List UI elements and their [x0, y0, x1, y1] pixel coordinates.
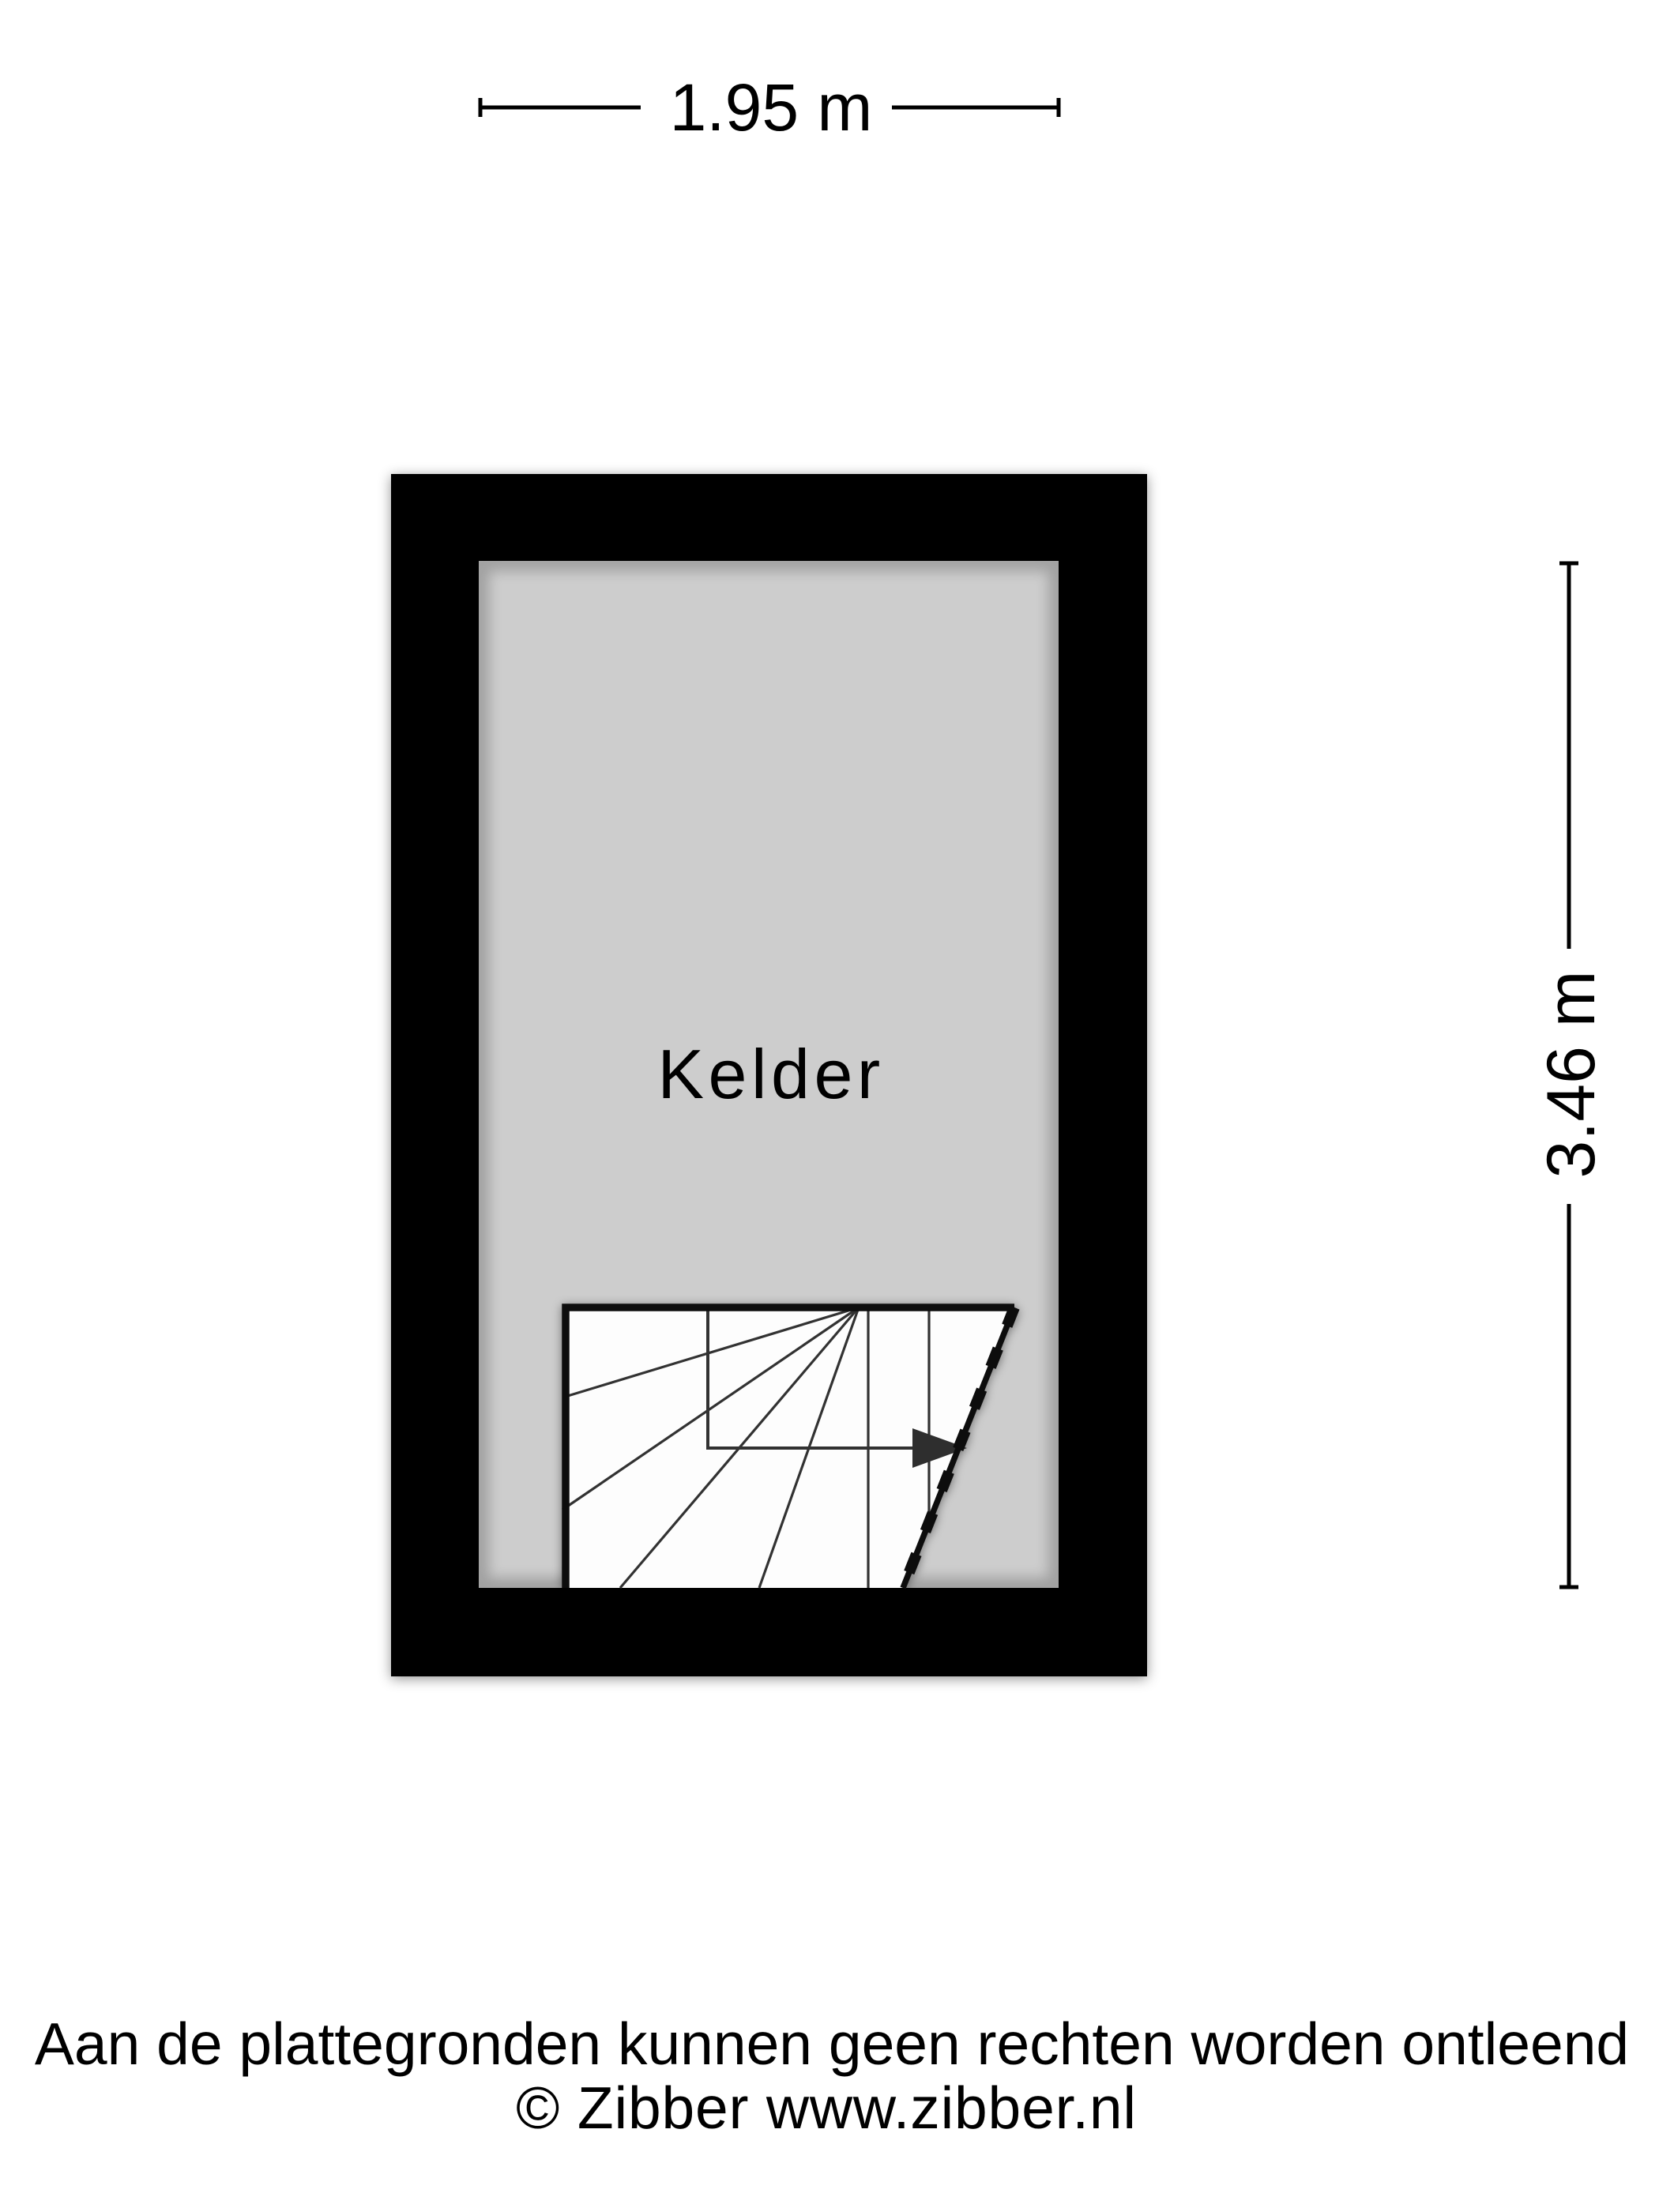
svg-text:3.46 m: 3.46 m: [1533, 971, 1609, 1179]
svg-text:© Zibber www.zibber.nl: © Zibber www.zibber.nl: [516, 2075, 1137, 2141]
svg-text:1.95 m: 1.95 m: [670, 70, 873, 145]
svg-text:Aan de plattegronden kunnen ge: Aan de plattegronden kunnen geen rechten…: [35, 2011, 1629, 2077]
svg-text:Kelder: Kelder: [657, 1035, 884, 1113]
